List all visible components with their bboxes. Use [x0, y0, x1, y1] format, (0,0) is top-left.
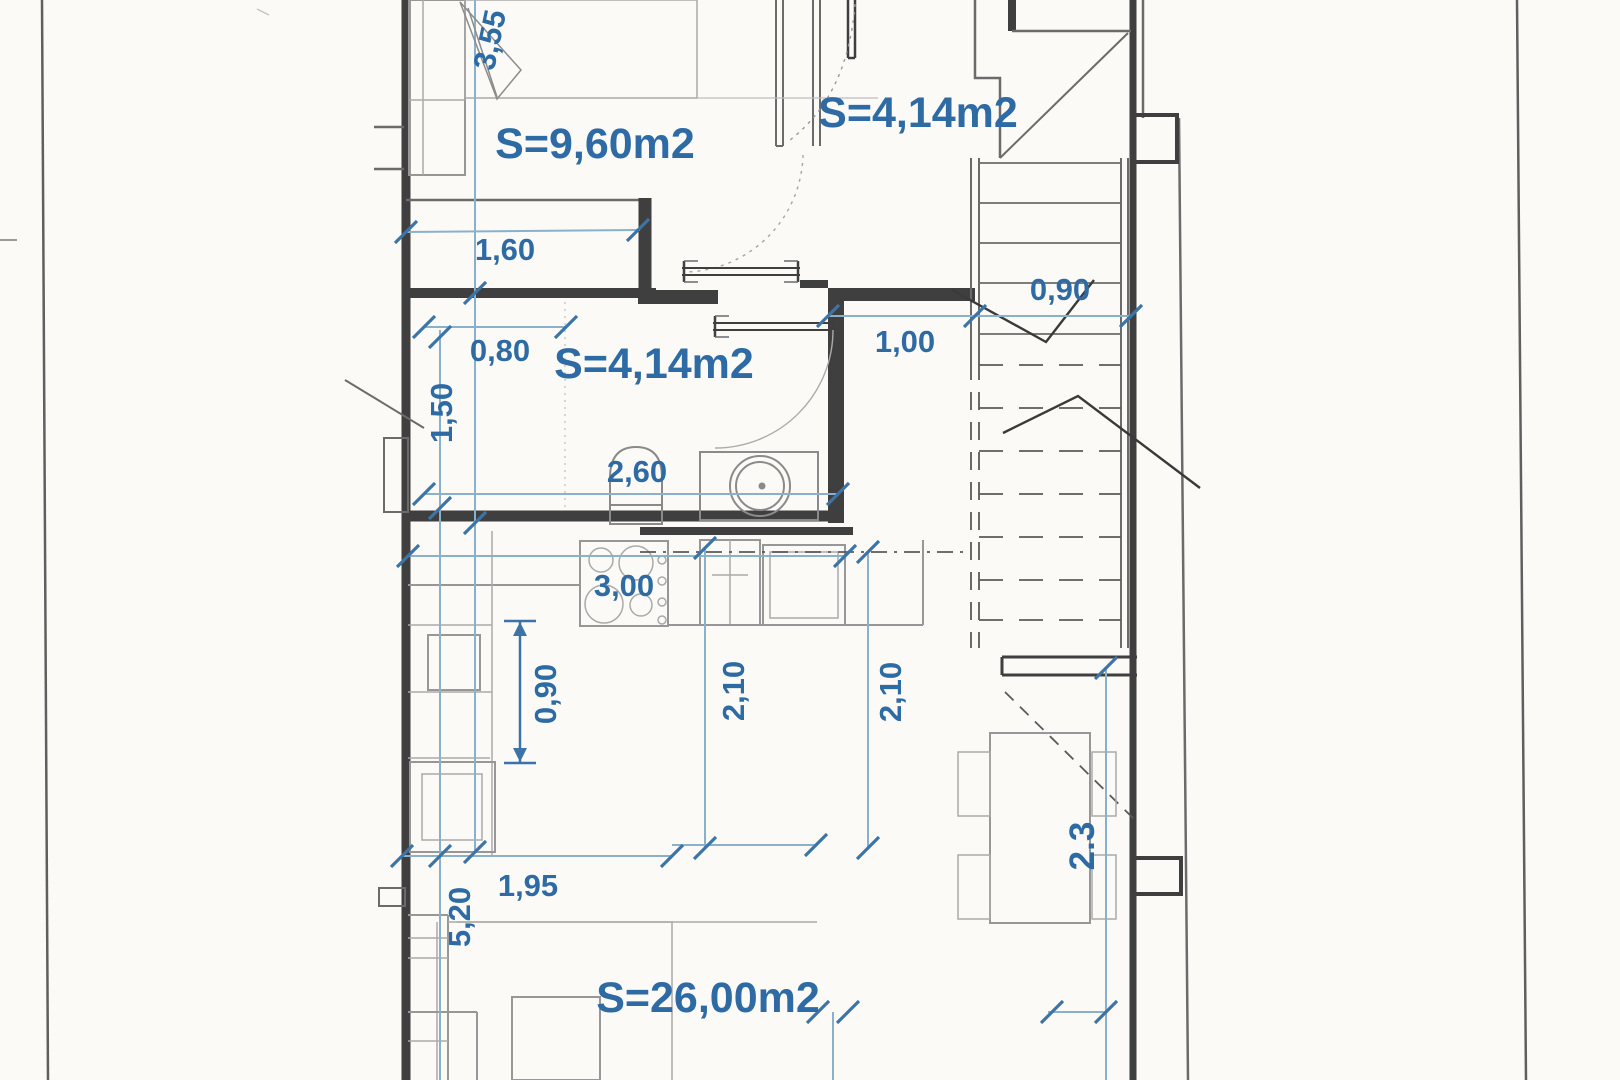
dim-label-2-10-right: 2,10: [873, 662, 908, 722]
chair: [958, 752, 990, 816]
dim-label-1-95: 1,95: [498, 868, 558, 903]
dim-label-3-00: 3,00: [594, 568, 654, 603]
scan-page-borders: [0, 0, 1526, 1080]
right-wall-pier-top: [1133, 115, 1177, 162]
understairs-diagonal: [1000, 33, 1128, 158]
room-label-bedroom: S=9,60m2: [495, 120, 695, 168]
left-wall-pier-living: [379, 888, 405, 906]
wardrobe: [409, 0, 465, 175]
leader-line: [345, 380, 424, 428]
dim-label-1-00: 1,00: [875, 324, 935, 359]
coffee-table: [512, 997, 600, 1080]
dim-label-2-3: 2.3: [1063, 822, 1102, 871]
right-wall-pier-bottom: [1133, 858, 1181, 894]
dim-label-0-80: 0,80: [470, 333, 530, 368]
dim-label-1-50: 1,50: [424, 383, 459, 443]
sink-drain: [759, 483, 766, 490]
bathroom-fixtures: [565, 302, 818, 524]
chair: [958, 855, 990, 919]
chair: [1092, 752, 1116, 816]
bedroom-door-arc: [683, 155, 803, 272]
stair-break-line: [952, 280, 1200, 488]
stair-treads-solid: [979, 163, 1121, 334]
room-label-living: S=26,00m2: [596, 974, 820, 1022]
kitchen-appliance: [428, 635, 480, 690]
room-label-bathroom: S=4,14m2: [554, 340, 754, 388]
stair-treads-dashed: [979, 365, 1121, 620]
floor-plan-canvas: S=9,60m2 S=4,14m2 S=4,14m2 S=26,00m2 3,5…: [0, 0, 1620, 1080]
dim-label-0-90-kitchen: 0,90: [528, 664, 563, 724]
dim-label-2-10-left: 2,10: [716, 661, 751, 721]
dim-label-0-90-stairs: 0,90: [1030, 272, 1090, 307]
dim-label-2-60: 2,60: [607, 454, 667, 489]
dim-label-1-60: 1,60: [475, 232, 535, 267]
room-label-entry: S=4,14m2: [818, 89, 1018, 137]
hall-top-wall: [844, 288, 975, 301]
dim-label-5-20: 5,20: [442, 887, 477, 947]
bath-top-wall: [638, 290, 718, 304]
